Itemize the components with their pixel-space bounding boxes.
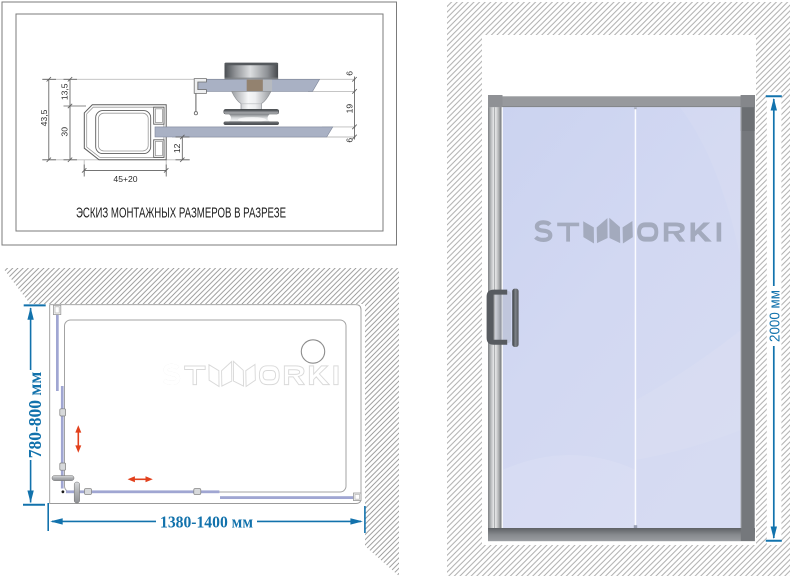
svg-text:19: 19 xyxy=(344,104,354,114)
svg-text:6: 6 xyxy=(344,71,354,76)
svg-text:1380-1400 мм: 1380-1400 мм xyxy=(160,512,253,531)
svg-text:45+20: 45+20 xyxy=(113,174,137,184)
svg-text:43,5: 43,5 xyxy=(39,109,49,126)
svg-text:6: 6 xyxy=(344,138,354,143)
svg-text:2000 мм: 2000 мм xyxy=(767,290,784,342)
svg-text:ЭСКИЗ МОНТАЖНЫХ РАЗМЕРОВ В РАЗ: ЭСКИЗ МОНТАЖНЫХ РАЗМЕРОВ В РАЗРЕЗЕ xyxy=(76,205,286,222)
svg-text:30: 30 xyxy=(60,127,70,137)
svg-text:13,5: 13,5 xyxy=(60,83,70,100)
svg-text:12: 12 xyxy=(172,143,182,153)
svg-text:780-800 мм: 780-800 мм xyxy=(25,372,45,459)
